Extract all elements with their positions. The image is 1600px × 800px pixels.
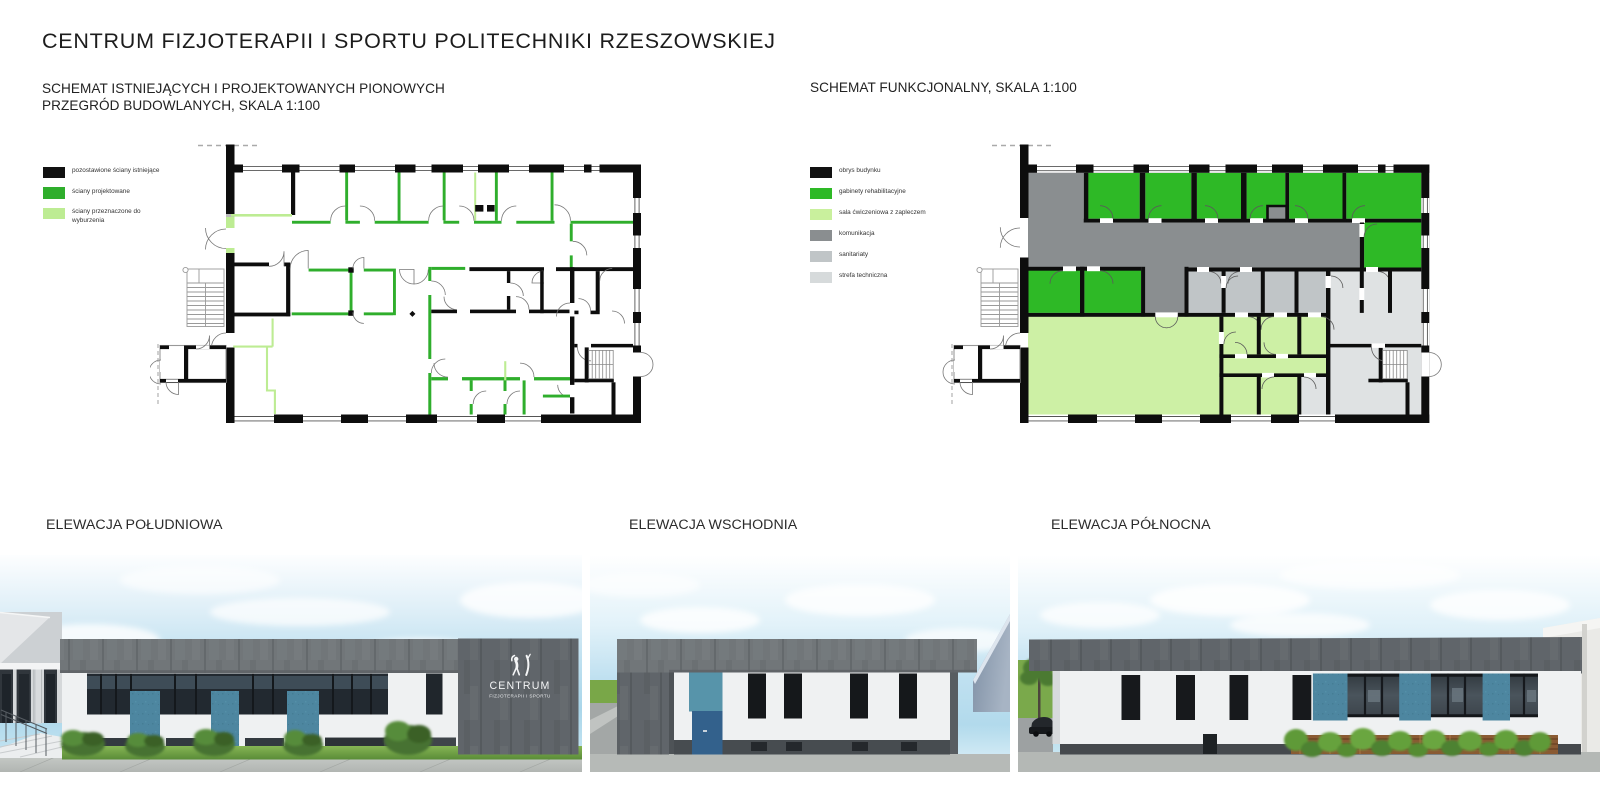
svg-text:FIZJOTERAPII I SPORTU: FIZJOTERAPII I SPORTU <box>489 694 551 699</box>
svg-text:CENTRUM: CENTRUM <box>489 680 550 692</box>
